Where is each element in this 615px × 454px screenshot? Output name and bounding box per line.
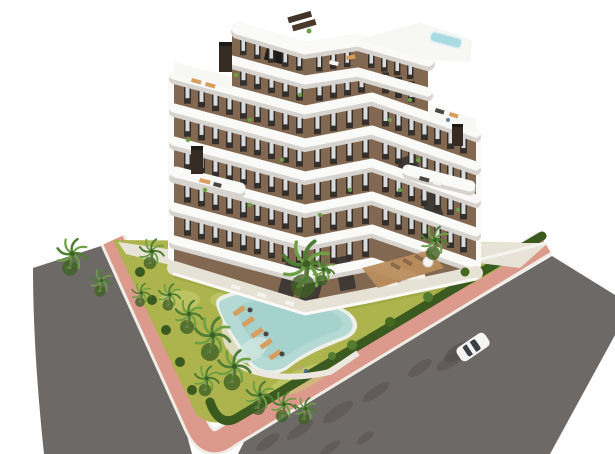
- architectural-render: [0, 0, 615, 454]
- person: [446, 118, 450, 122]
- umbrella-icon: [280, 352, 285, 357]
- person: [298, 366, 302, 370]
- person: [304, 369, 308, 373]
- render-canvas: [0, 0, 615, 454]
- umbrella-icon: [248, 308, 253, 313]
- umbrella-icon: [264, 332, 269, 337]
